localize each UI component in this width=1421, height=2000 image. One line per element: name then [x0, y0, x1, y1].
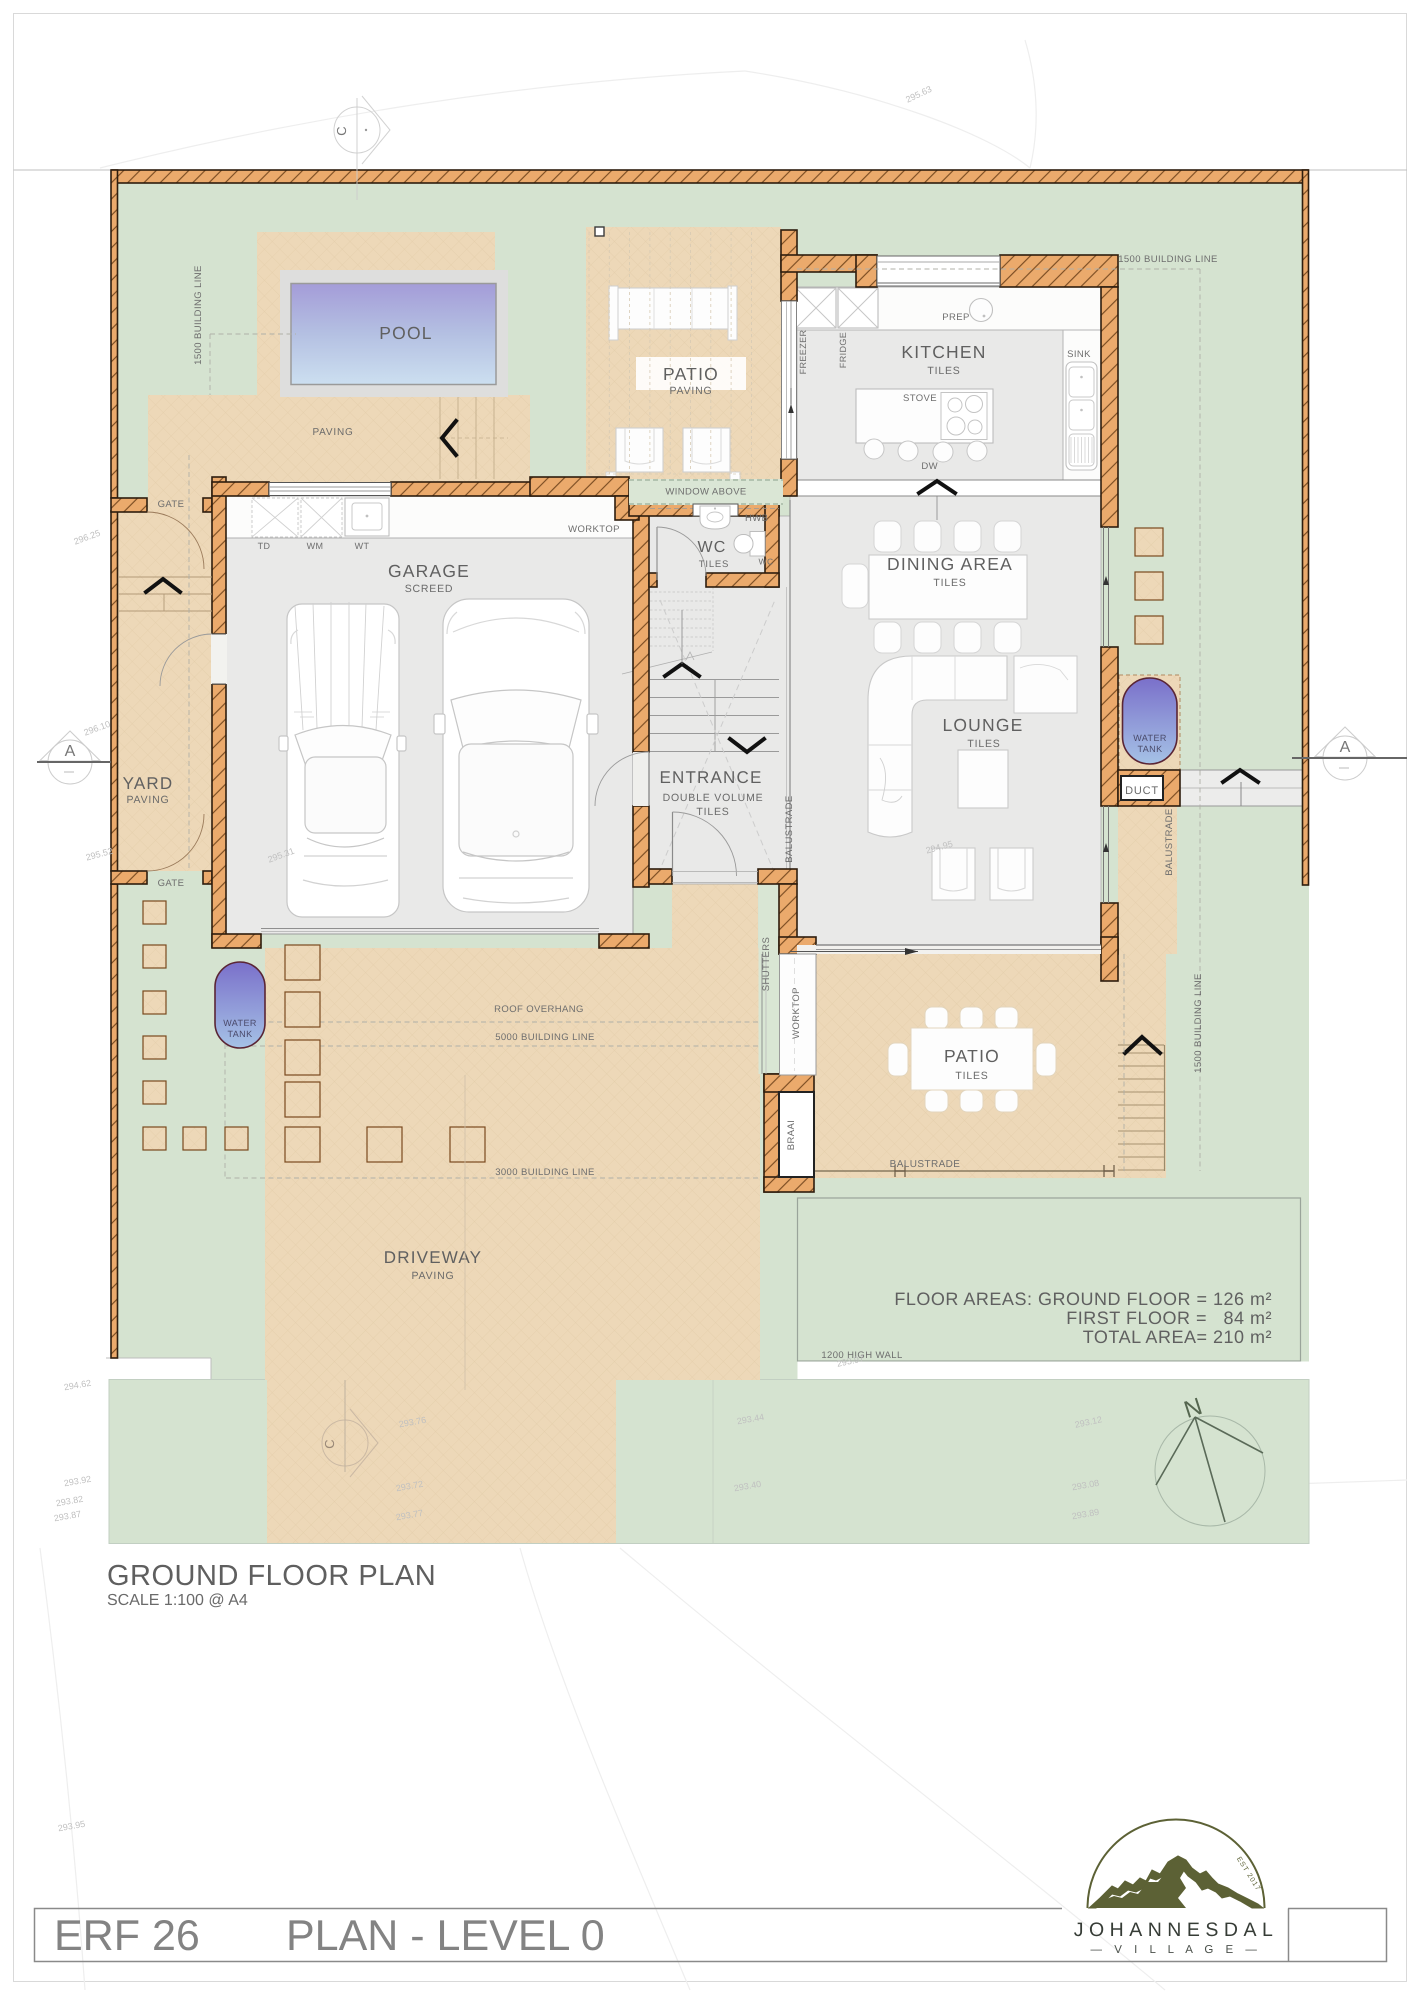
svg-text:DINING AREA: DINING AREA — [887, 554, 1013, 574]
svg-text:DW: DW — [921, 461, 938, 472]
svg-text:PATIO: PATIO — [663, 364, 719, 384]
svg-text:WATER: WATER — [223, 1018, 257, 1028]
svg-text:SINK: SINK — [1067, 349, 1091, 360]
svg-text:DOUBLE VOLUME: DOUBLE VOLUME — [663, 792, 764, 804]
svg-text:POOL: POOL — [379, 323, 432, 343]
svg-text:GATE: GATE — [158, 499, 185, 510]
svg-text:1500 BUILDING LINE: 1500 BUILDING LINE — [1193, 973, 1204, 1073]
svg-text:TD: TD — [258, 541, 271, 551]
svg-text:1500 BUILDING LINE: 1500 BUILDING LINE — [1118, 254, 1218, 265]
svg-text:WINDOW ABOVE: WINDOW ABOVE — [665, 487, 746, 498]
svg-text:TILES: TILES — [699, 559, 729, 570]
svg-text:GARAGE: GARAGE — [388, 561, 470, 581]
svg-text:PATIO: PATIO — [944, 1046, 1000, 1066]
svg-text:WORKTOP: WORKTOP — [568, 524, 620, 535]
svg-text:C: C — [322, 1439, 337, 1448]
svg-text:WT: WT — [355, 541, 370, 551]
svg-text:A: A — [65, 743, 76, 760]
svg-text:— V I L L A G E —: — V I L L A G E — — [1091, 1944, 1262, 1956]
svg-text:1500 BUILDING LINE: 1500 BUILDING LINE — [193, 265, 204, 365]
svg-text:WC: WC — [697, 539, 726, 556]
svg-text:BRAAI: BRAAI — [786, 1120, 797, 1151]
svg-text:WATER: WATER — [1133, 733, 1167, 743]
svg-text:SHUTTERS: SHUTTERS — [761, 937, 772, 991]
svg-text:SCREED: SCREED — [405, 583, 454, 595]
svg-text:TOTAL AREA= 210 m²: TOTAL AREA= 210 m² — [1083, 1327, 1272, 1347]
svg-text:BALUSTRADE: BALUSTRADE — [1164, 808, 1175, 875]
svg-text:TILES: TILES — [696, 806, 729, 818]
svg-text:WM: WM — [307, 541, 324, 551]
svg-text:BALUSTRADE: BALUSTRADE — [784, 795, 795, 862]
svg-text:KITCHEN: KITCHEN — [901, 342, 986, 362]
svg-text:STOVE: STOVE — [903, 393, 937, 404]
svg-text:ENTRANCE: ENTRANCE — [659, 768, 762, 787]
svg-text:FREEZER: FREEZER — [798, 330, 808, 375]
svg-text:HWB: HWB — [745, 513, 768, 524]
svg-text:PREP: PREP — [942, 312, 969, 323]
svg-text:GATE: GATE — [158, 878, 185, 889]
svg-text:PAVING: PAVING — [312, 427, 353, 438]
svg-text:LOUNGE: LOUNGE — [942, 715, 1023, 735]
svg-text:FLOOR AREAS: GROUND FLOOR = 1: FLOOR AREAS: GROUND FLOOR = 126 m² — [894, 1289, 1272, 1309]
svg-text:TILES: TILES — [933, 577, 966, 589]
svg-text:PAVING: PAVING — [127, 794, 170, 806]
svg-text:FIRST FLOOR = 84 m²: FIRST FLOOR = 84 m² — [1066, 1308, 1272, 1328]
svg-text:TANK: TANK — [1138, 744, 1163, 754]
svg-text:TILES: TILES — [955, 1070, 988, 1082]
svg-text:BALUSTRADE: BALUSTRADE — [890, 1159, 961, 1170]
svg-text:FRIDGE: FRIDGE — [838, 332, 848, 368]
svg-text:DUCT: DUCT — [1125, 785, 1159, 797]
svg-text:PAVING: PAVING — [670, 385, 713, 397]
svg-text:PLAN - LEVEL 0: PLAN - LEVEL 0 — [286, 1912, 605, 1960]
svg-text:ERF 26: ERF 26 — [54, 1912, 200, 1960]
svg-text:3000 BUILDING LINE: 3000 BUILDING LINE — [495, 1167, 595, 1178]
svg-text:TILES: TILES — [927, 365, 960, 377]
svg-text:YARD: YARD — [123, 774, 174, 793]
svg-text:ROOF OVERHANG: ROOF OVERHANG — [494, 1004, 584, 1015]
svg-text:5000 BUILDING LINE: 5000 BUILDING LINE — [495, 1032, 595, 1043]
svg-text:WC: WC — [759, 557, 774, 567]
svg-text:PAVING: PAVING — [412, 1270, 455, 1282]
svg-text:SCALE 1:100 @ A4: SCALE 1:100 @ A4 — [107, 1592, 248, 1609]
svg-text:TANK: TANK — [228, 1029, 253, 1039]
svg-text:JOHANNESDAL: JOHANNESDAL — [1074, 1919, 1279, 1941]
svg-text:A: A — [1340, 739, 1351, 756]
svg-text:TILES: TILES — [967, 738, 1000, 750]
svg-text:C: C — [334, 126, 349, 135]
svg-text:WORKTOP: WORKTOP — [791, 987, 802, 1039]
svg-text:DRIVEWAY: DRIVEWAY — [384, 1248, 482, 1267]
svg-text:GROUND FLOOR PLAN: GROUND FLOOR PLAN — [107, 1560, 436, 1592]
